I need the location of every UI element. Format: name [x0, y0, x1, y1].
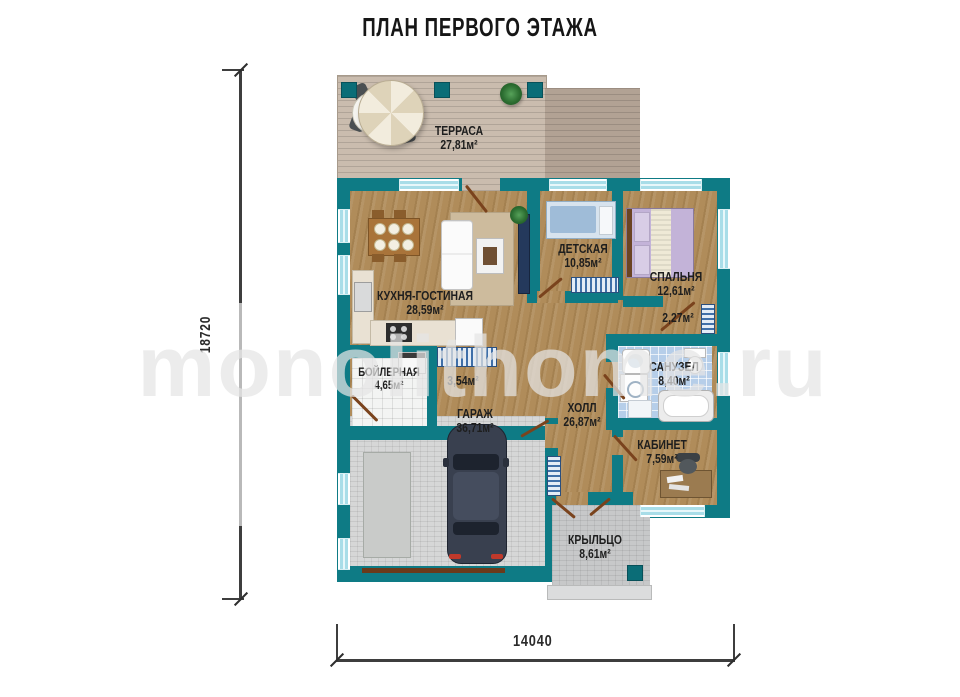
terrace-post — [527, 82, 543, 98]
window — [338, 209, 350, 243]
terrace-post — [341, 82, 357, 98]
window — [640, 179, 702, 191]
plant-icon — [510, 206, 528, 224]
dining-table-icon — [368, 218, 420, 256]
chair-icon — [394, 210, 406, 218]
window — [640, 505, 705, 517]
double-bed-icon — [626, 208, 694, 278]
dimension-horizontal-value: 14040 — [513, 633, 553, 651]
room-label-office: КАБИНЕТ 7,59м² — [622, 438, 702, 467]
room-label-hall: ХОЛЛ 26,87м² — [542, 401, 622, 430]
window — [399, 179, 459, 191]
wall — [606, 334, 730, 346]
porch-post — [627, 565, 643, 581]
sofa-icon — [441, 220, 473, 290]
room-label-boiler: БОЙЛЕРНАЯ 4,65м² — [353, 366, 425, 392]
chair-icon — [394, 254, 406, 262]
terrace-shadow-deck — [545, 88, 640, 178]
chair-icon — [372, 254, 384, 262]
garage-gate — [362, 568, 505, 573]
radiator — [571, 277, 619, 293]
floor-plan-screenshot: ПЛАН ПЕРВОГО ЭТАЖА 18720 14040 — [0, 0, 960, 697]
window — [338, 538, 350, 570]
chair-icon — [372, 210, 384, 218]
kitchen-island-icon — [455, 318, 483, 346]
coffee-table-icon — [476, 238, 504, 274]
tv-unit-icon — [518, 214, 530, 294]
single-bed-icon — [546, 201, 616, 239]
room-label-children: ДЕТСКАЯ 10,85м² — [543, 242, 623, 271]
room-label-bedroom: СПАЛЬНЯ 12,61м² — [636, 270, 716, 299]
radiator — [547, 456, 561, 496]
stove-icon — [386, 323, 412, 342]
wardrobe-icon — [437, 347, 497, 367]
dimension-line — [239, 70, 242, 600]
car-icon — [447, 424, 505, 562]
room-label-porch: КРЫЛЬЦО 8,61м² — [555, 533, 635, 562]
bathtub-icon — [658, 390, 714, 422]
room-label-bathroom: САНУЗЕЛ 8,40м² — [634, 360, 714, 389]
porch-step — [547, 585, 652, 600]
room-label-terrace: ТЕРРАСА 27,81м² — [411, 124, 507, 153]
dimension-line — [337, 659, 735, 662]
wall — [606, 334, 618, 362]
terrace-post — [434, 82, 450, 98]
window — [718, 352, 730, 396]
room-label-corridor: 3,54м² — [431, 374, 495, 388]
bath-mat-icon — [628, 400, 652, 418]
room-label-garage: ГАРАЖ 36,71м² — [427, 407, 523, 436]
desk-icon — [660, 470, 712, 498]
inspection-pit — [363, 452, 411, 558]
room-label-closet: 2,27м² — [646, 311, 710, 325]
page-title: ПЛАН ПЕРВОГО ЭТАЖА — [134, 12, 825, 43]
window — [338, 255, 350, 295]
dimension-vertical-value: 18720 — [197, 316, 214, 353]
plant-icon — [500, 83, 522, 105]
window — [549, 179, 607, 191]
room-label-kitchen-living: КУХНЯ-ГОСТИНАЯ 28,59м² — [357, 289, 493, 318]
window — [338, 473, 350, 505]
window — [718, 209, 730, 269]
